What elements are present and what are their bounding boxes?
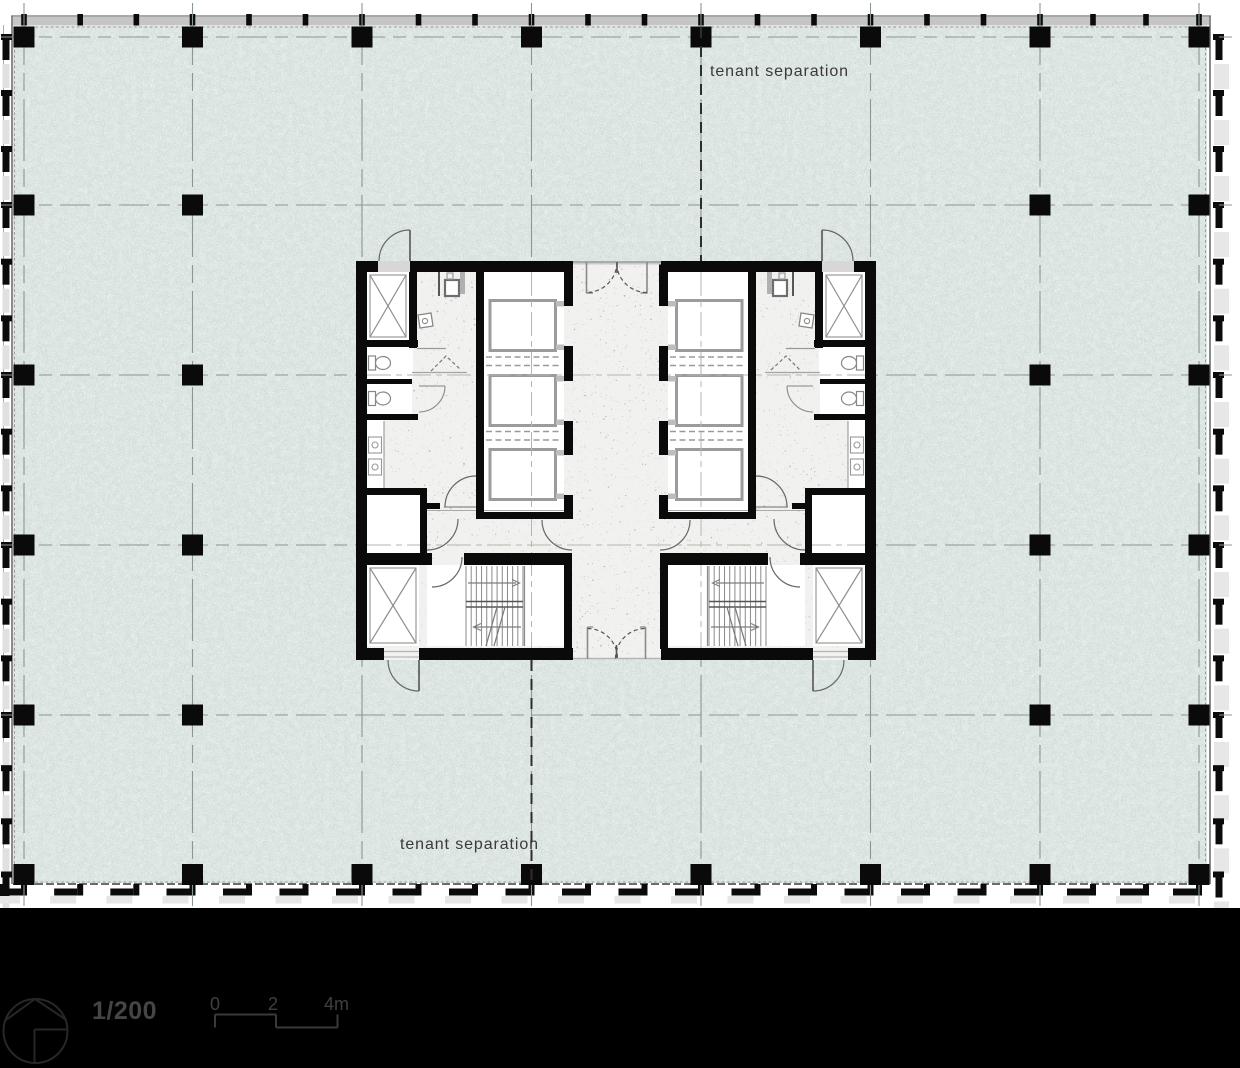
svg-text:0: 0 (210, 994, 220, 1014)
svg-text:1/200: 1/200 (92, 997, 157, 1025)
svg-text:tenant separation: tenant separation (710, 63, 849, 80)
svg-text:2: 2 (268, 994, 278, 1014)
svg-text:4m: 4m (324, 994, 349, 1014)
svg-text:tenant separation: tenant separation (400, 836, 539, 853)
